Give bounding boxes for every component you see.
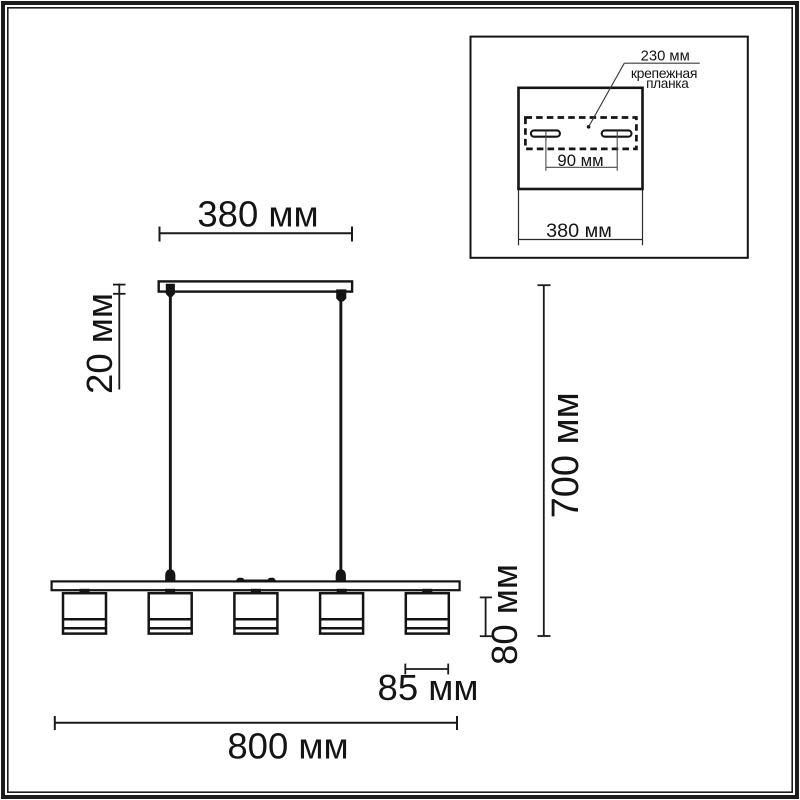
svg-text:планка: планка xyxy=(646,76,689,91)
svg-text:85 мм: 85 мм xyxy=(378,667,479,708)
svg-text:20 мм: 20 мм xyxy=(79,293,120,394)
svg-text:380 мм: 380 мм xyxy=(197,194,318,235)
svg-text:90 мм: 90 мм xyxy=(557,151,603,170)
svg-text:80 мм: 80 мм xyxy=(484,564,525,665)
svg-text:800 мм: 800 мм xyxy=(227,726,348,767)
svg-text:230 мм: 230 мм xyxy=(641,48,690,64)
svg-text:700 мм: 700 мм xyxy=(545,392,587,518)
svg-text:380 мм: 380 мм xyxy=(546,220,612,242)
